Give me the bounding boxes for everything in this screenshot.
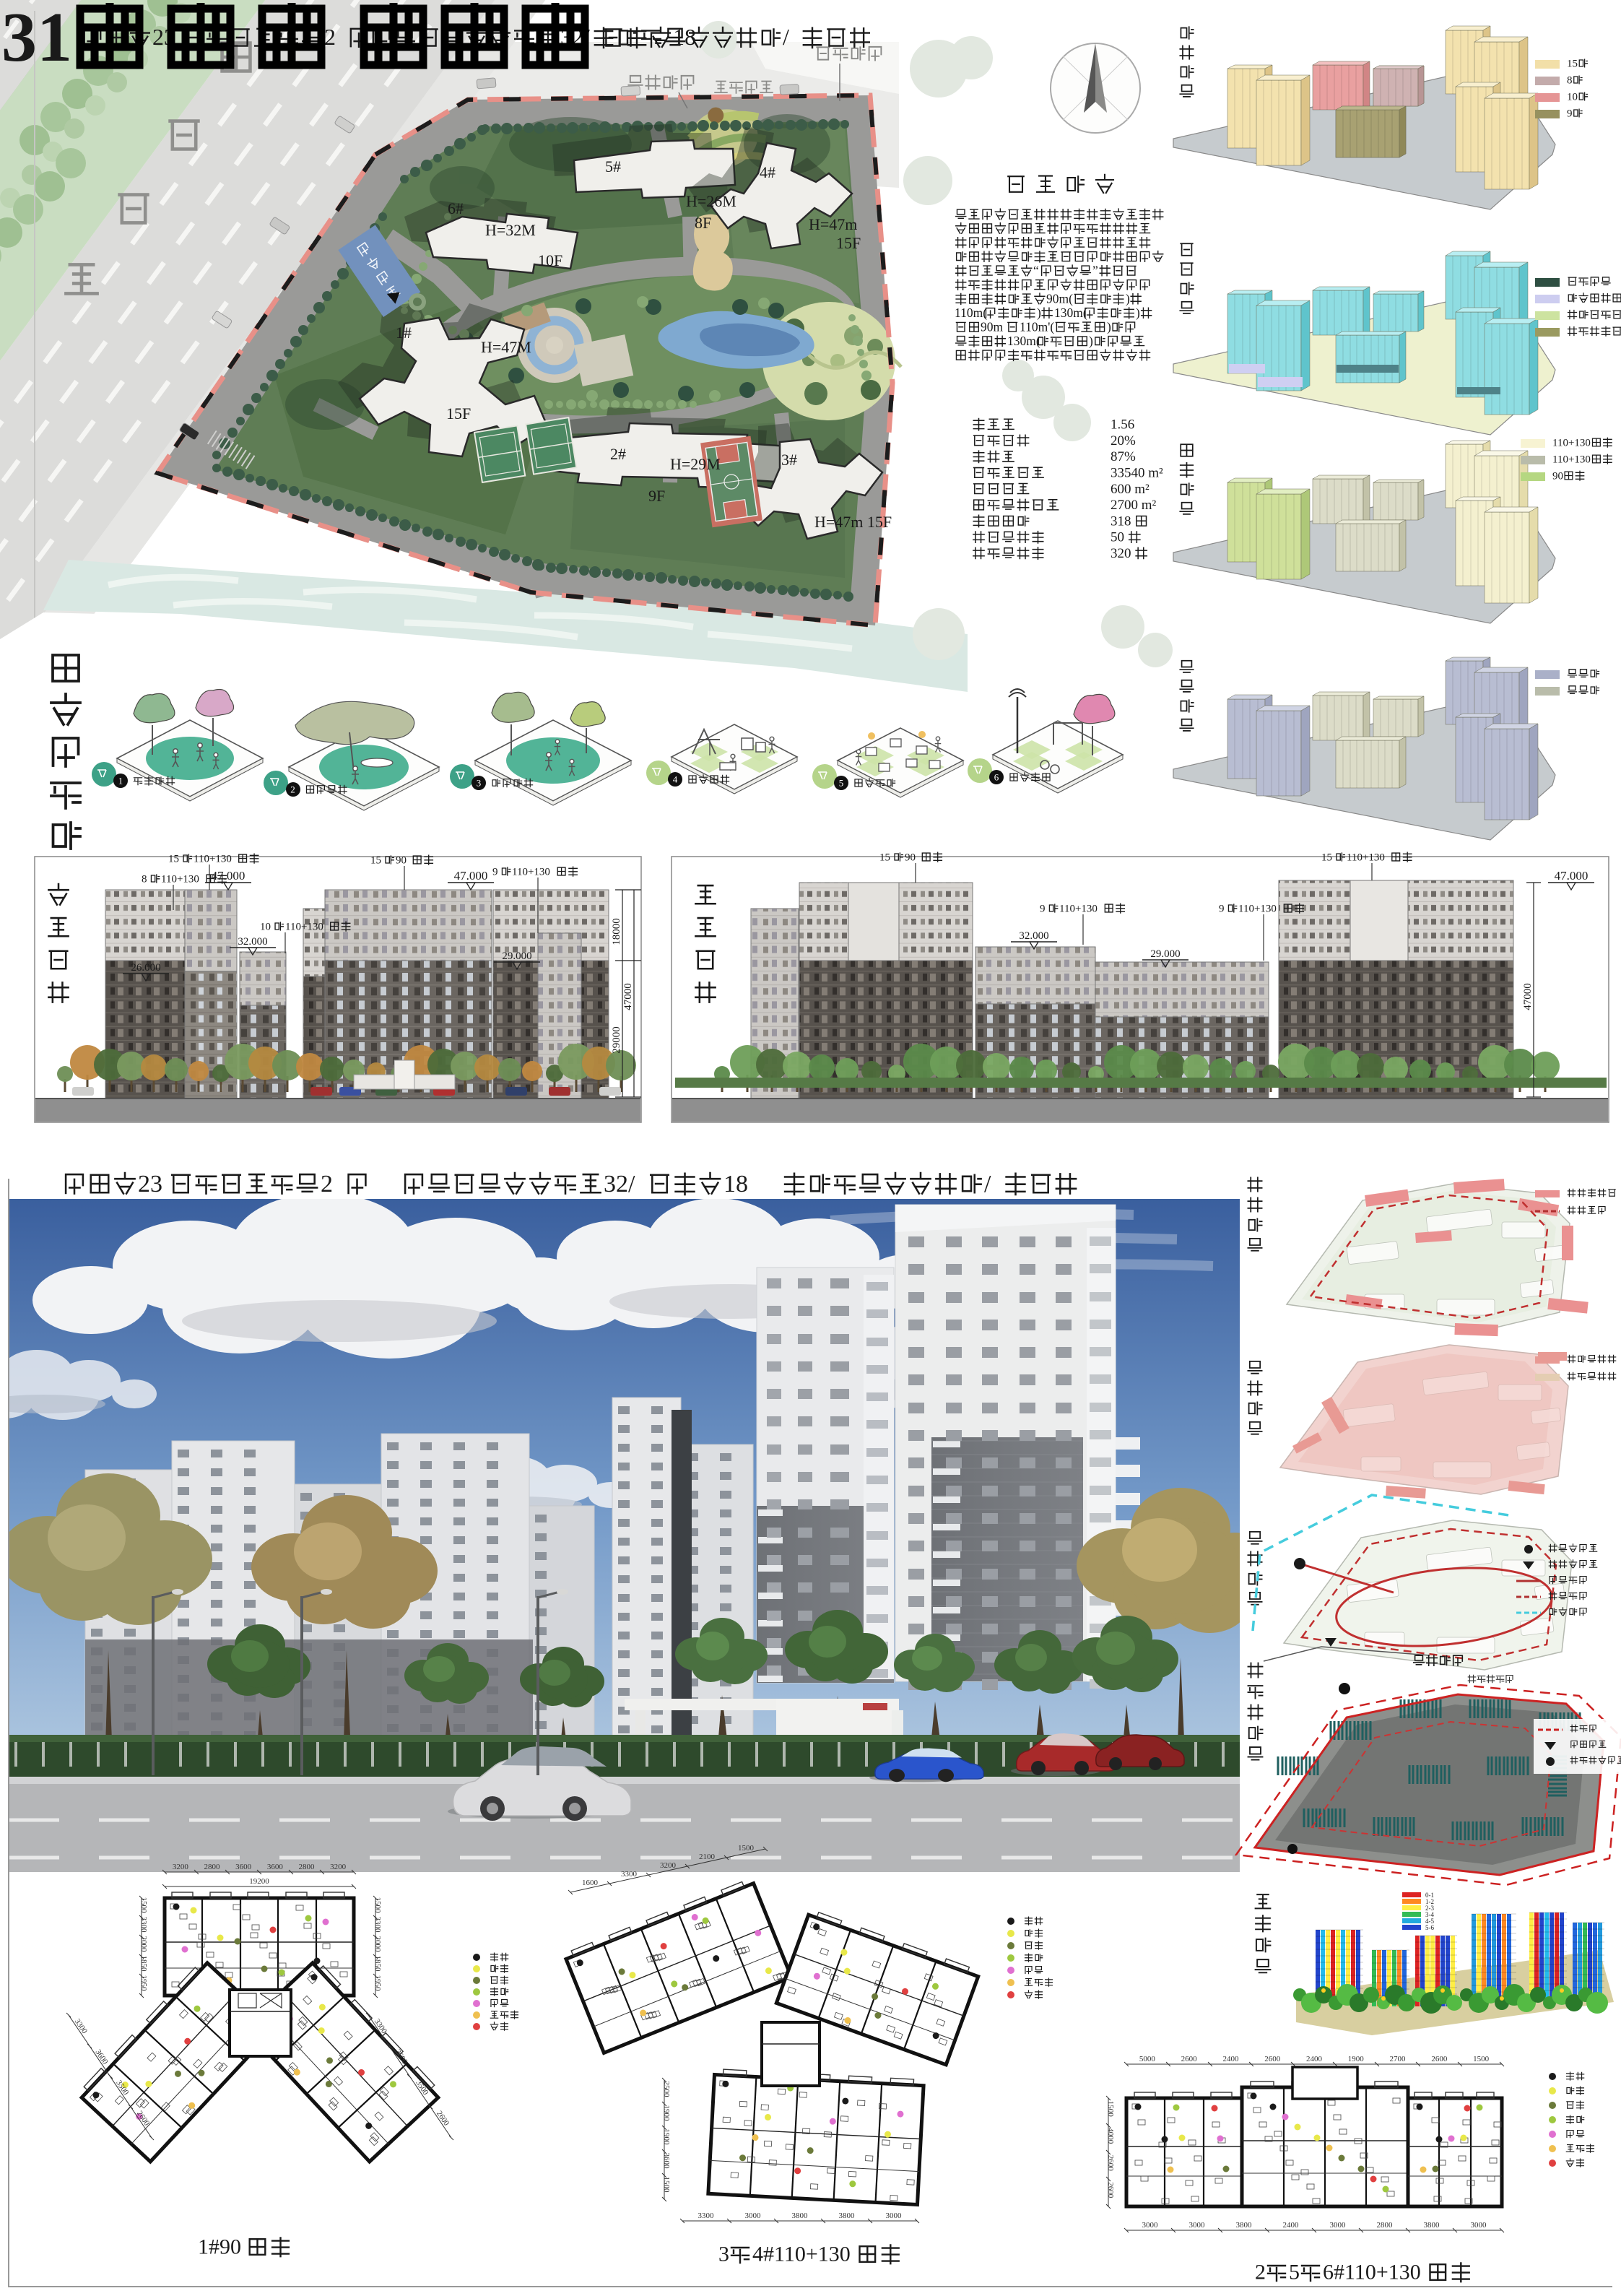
svg-text:3000: 3000 bbox=[1189, 2221, 1206, 2230]
svg-text:3000: 3000 bbox=[1142, 2221, 1159, 2230]
svg-text:3000: 3000 bbox=[1330, 2221, 1347, 2230]
svg-text:110+130: 110+130 bbox=[1552, 454, 1591, 465]
svg-text:1900: 1900 bbox=[662, 2129, 671, 2146]
svg-text:2000: 2000 bbox=[139, 1936, 148, 1953]
svg-text:1850: 1850 bbox=[373, 1956, 382, 1972]
svg-text:5#: 5# bbox=[605, 157, 621, 176]
svg-text:47000: 47000 bbox=[622, 983, 634, 1010]
svg-text:): ) bbox=[1107, 319, 1111, 334]
svg-text:9: 9 bbox=[1567, 108, 1573, 119]
svg-text:29000: 29000 bbox=[611, 1026, 622, 1054]
svg-text:110+130: 110+130 bbox=[194, 853, 232, 865]
svg-text:10: 10 bbox=[260, 921, 271, 932]
svg-text:/: / bbox=[984, 1171, 991, 1197]
svg-text:5000: 5000 bbox=[1139, 2055, 1156, 2063]
svg-text:3300: 3300 bbox=[139, 1917, 148, 1933]
svg-text:/: / bbox=[783, 24, 789, 50]
svg-text:2800: 2800 bbox=[204, 1863, 221, 1871]
svg-text:130m(: 130m( bbox=[1007, 334, 1040, 348]
svg-text:18000: 18000 bbox=[611, 918, 622, 945]
svg-text:1600: 1600 bbox=[582, 1879, 599, 1887]
svg-text:26.000: 26.000 bbox=[131, 962, 160, 974]
svg-text:15: 15 bbox=[168, 853, 179, 865]
svg-text:1#90: 1#90 bbox=[198, 2235, 241, 2259]
svg-text:10F: 10F bbox=[538, 251, 562, 269]
svg-text:3000: 3000 bbox=[1471, 2221, 1487, 2230]
svg-text:): ) bbox=[1037, 306, 1041, 320]
svg-text:1#: 1# bbox=[396, 324, 412, 342]
svg-text:2400: 2400 bbox=[1222, 2055, 1239, 2063]
svg-text:15: 15 bbox=[1321, 852, 1332, 863]
svg-text:1950: 1950 bbox=[373, 1975, 382, 1992]
svg-text:1500: 1500 bbox=[373, 1897, 382, 1914]
svg-text:3800: 3800 bbox=[792, 2211, 809, 2220]
svg-text:110+130: 110+130 bbox=[161, 873, 199, 885]
svg-text:15: 15 bbox=[1567, 58, 1578, 69]
svg-text:): ) bbox=[1126, 291, 1130, 306]
svg-text:4000: 4000 bbox=[1106, 2128, 1115, 2144]
svg-text:600 m²: 600 m² bbox=[1111, 482, 1150, 497]
svg-text:1.56: 1.56 bbox=[1111, 417, 1134, 433]
svg-text:2: 2 bbox=[1255, 2261, 1266, 2284]
svg-text:6#: 6# bbox=[448, 199, 464, 217]
svg-text:15F: 15F bbox=[836, 234, 861, 252]
svg-text:10: 10 bbox=[1567, 91, 1578, 103]
svg-text:2: 2 bbox=[321, 1171, 333, 1197]
svg-text:1900: 1900 bbox=[662, 2105, 671, 2122]
svg-text:”: ” bbox=[1092, 263, 1098, 277]
svg-text:3600: 3600 bbox=[235, 1863, 252, 1871]
svg-text:1500: 1500 bbox=[139, 1897, 148, 1914]
svg-text:2800: 2800 bbox=[299, 1863, 316, 1871]
svg-text:20%: 20% bbox=[1111, 433, 1136, 449]
svg-text:130m(: 130m( bbox=[1054, 306, 1087, 320]
svg-text:H=29M: H=29M bbox=[670, 455, 721, 473]
svg-text:9F: 9F bbox=[648, 487, 665, 505]
svg-text:18: 18 bbox=[723, 1171, 748, 1197]
svg-text:3#: 3# bbox=[781, 451, 797, 469]
svg-text:2: 2 bbox=[290, 784, 295, 795]
svg-text:3300: 3300 bbox=[373, 1917, 382, 1933]
svg-text:110+130: 110+130 bbox=[1059, 903, 1098, 914]
svg-text:): ) bbox=[1136, 306, 1140, 320]
svg-text:47.000: 47.000 bbox=[1555, 869, 1589, 883]
svg-text:2600: 2600 bbox=[1431, 2055, 1448, 2063]
svg-text:H=26M: H=26M bbox=[686, 192, 736, 210]
svg-text:2700 m²: 2700 m² bbox=[1111, 498, 1157, 513]
svg-text:8: 8 bbox=[1567, 74, 1573, 86]
svg-text:1500: 1500 bbox=[1106, 2101, 1115, 2118]
svg-text:1: 1 bbox=[118, 776, 123, 787]
svg-text:1950: 1950 bbox=[139, 1975, 148, 1992]
svg-text:8F: 8F bbox=[695, 214, 711, 232]
svg-text:3300: 3300 bbox=[621, 1870, 638, 1879]
svg-text:2600: 2600 bbox=[1106, 2155, 1115, 2172]
svg-text:): ) bbox=[1089, 334, 1093, 348]
svg-text:“: “ bbox=[1033, 263, 1039, 277]
svg-text:2600: 2600 bbox=[1181, 2055, 1198, 2063]
svg-text:3200: 3200 bbox=[330, 1863, 347, 1871]
svg-text:3: 3 bbox=[477, 778, 482, 789]
svg-text:4: 4 bbox=[673, 774, 678, 785]
svg-text:2: 2 bbox=[324, 24, 336, 50]
svg-text:3200: 3200 bbox=[173, 1863, 189, 1871]
svg-text:19200: 19200 bbox=[249, 1877, 269, 1886]
svg-text:1850: 1850 bbox=[139, 1956, 148, 1972]
svg-text:9: 9 bbox=[1040, 903, 1046, 914]
svg-text:29.000: 29.000 bbox=[1150, 948, 1180, 960]
svg-text:320: 320 bbox=[1111, 546, 1131, 561]
svg-text:3600: 3600 bbox=[662, 2153, 671, 2170]
svg-text:110+130: 110+130 bbox=[285, 921, 323, 932]
svg-text:3: 3 bbox=[718, 2243, 729, 2266]
svg-text:47.000: 47.000 bbox=[454, 869, 488, 883]
svg-text:H=47M: H=47M bbox=[481, 338, 531, 356]
svg-text:1900: 1900 bbox=[1348, 2055, 1365, 2063]
svg-text:2500: 2500 bbox=[662, 2081, 671, 2098]
svg-text:2600: 2600 bbox=[1264, 2055, 1281, 2063]
svg-text:15F: 15F bbox=[446, 404, 471, 423]
svg-text:2000: 2000 bbox=[373, 1936, 382, 1953]
svg-text:3000: 3000 bbox=[886, 2211, 903, 2220]
svg-text:2400: 2400 bbox=[1283, 2221, 1300, 2230]
svg-text:9: 9 bbox=[1219, 903, 1225, 914]
svg-text:2800: 2800 bbox=[1377, 2221, 1394, 2230]
svg-text:3200: 3200 bbox=[660, 1861, 677, 1870]
svg-text:87%: 87% bbox=[1111, 449, 1136, 464]
svg-text:110+130: 110+130 bbox=[512, 866, 550, 878]
svg-text:2700: 2700 bbox=[1390, 2055, 1407, 2063]
svg-text:90m(: 90m( bbox=[1046, 291, 1073, 306]
svg-text:31: 31 bbox=[1, 0, 72, 77]
svg-text:110+130: 110+130 bbox=[1238, 903, 1277, 914]
svg-text:110+130: 110+130 bbox=[1552, 437, 1591, 449]
svg-text:3800: 3800 bbox=[1236, 2221, 1253, 2230]
svg-text:8: 8 bbox=[142, 873, 147, 885]
svg-text:23: 23 bbox=[138, 1171, 162, 1197]
svg-text:110m(: 110m( bbox=[955, 306, 987, 320]
svg-text:5: 5 bbox=[839, 778, 844, 789]
svg-text:5-6: 5-6 bbox=[1425, 1924, 1434, 1931]
svg-text:3000: 3000 bbox=[745, 2211, 762, 2220]
svg-text:110+130: 110+130 bbox=[1347, 852, 1385, 863]
svg-text:4#110+130: 4#110+130 bbox=[752, 2243, 851, 2266]
svg-text:H=47m: H=47m bbox=[809, 215, 857, 233]
svg-text:47.000: 47.000 bbox=[212, 869, 245, 883]
svg-text:3600: 3600 bbox=[267, 1863, 284, 1871]
svg-text:6#110+130: 6#110+130 bbox=[1323, 2261, 1421, 2284]
svg-text:90: 90 bbox=[1552, 470, 1563, 482]
svg-text:6: 6 bbox=[994, 772, 999, 783]
svg-text:1500: 1500 bbox=[738, 1844, 755, 1853]
svg-text:32.000: 32.000 bbox=[238, 936, 267, 948]
svg-text:9: 9 bbox=[492, 866, 498, 878]
svg-text:47000: 47000 bbox=[1522, 983, 1534, 1010]
svg-text:3800: 3800 bbox=[839, 2211, 856, 2220]
svg-text:2400: 2400 bbox=[1306, 2055, 1323, 2063]
svg-text:H=32M: H=32M bbox=[485, 221, 536, 239]
svg-text:90m: 90m bbox=[981, 319, 1004, 334]
svg-text:110m'(: 110m'( bbox=[1020, 319, 1054, 334]
svg-text:3300: 3300 bbox=[698, 2211, 715, 2220]
svg-text:5: 5 bbox=[1289, 2261, 1300, 2284]
svg-text:1500: 1500 bbox=[662, 2177, 671, 2193]
svg-text:1500: 1500 bbox=[1473, 2055, 1490, 2063]
svg-text:H=47m 15F: H=47m 15F bbox=[814, 513, 892, 531]
svg-text:32/: 32/ bbox=[604, 1171, 635, 1197]
svg-text:90: 90 bbox=[905, 852, 916, 863]
svg-text:15: 15 bbox=[879, 852, 890, 863]
svg-text:50: 50 bbox=[1111, 530, 1124, 545]
svg-text:4#: 4# bbox=[760, 163, 775, 181]
svg-text:15: 15 bbox=[370, 854, 381, 866]
svg-text:318: 318 bbox=[1111, 514, 1131, 529]
svg-text:90: 90 bbox=[396, 854, 407, 866]
svg-text:2#: 2# bbox=[610, 445, 626, 463]
svg-text:2600: 2600 bbox=[1106, 2182, 1115, 2198]
svg-text:3800: 3800 bbox=[1424, 2221, 1440, 2230]
svg-text:32.000: 32.000 bbox=[1019, 930, 1048, 942]
svg-text:2100: 2100 bbox=[699, 1853, 716, 1861]
svg-text:29.000: 29.000 bbox=[502, 950, 531, 962]
svg-text:33540 m²: 33540 m² bbox=[1111, 466, 1163, 481]
